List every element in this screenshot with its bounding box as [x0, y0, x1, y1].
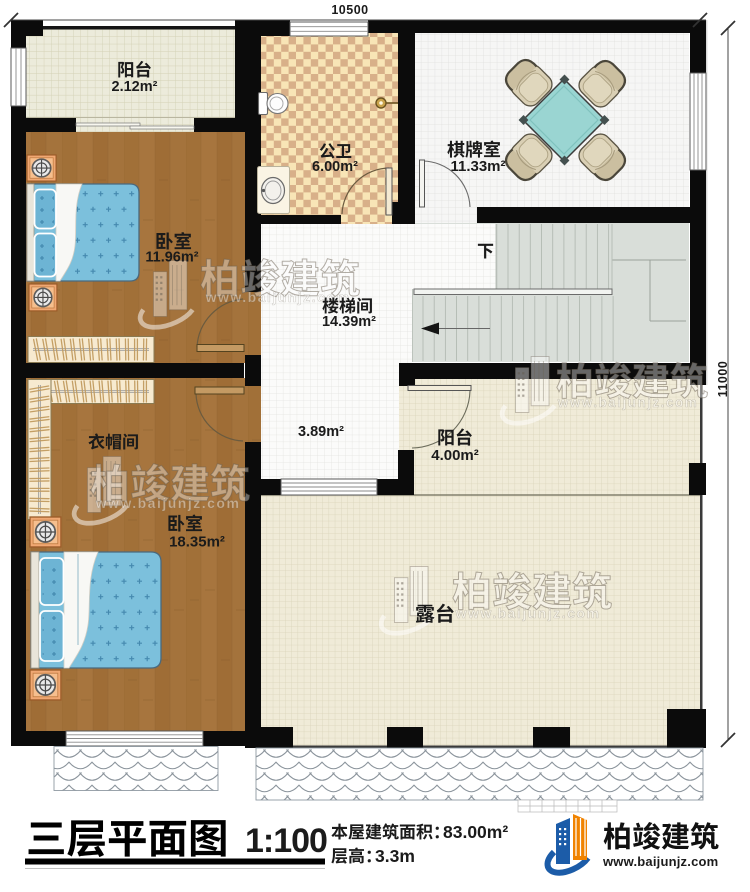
svg-text:11.33m²: 11.33m²	[450, 158, 505, 175]
svg-text:2.12m²: 2.12m²	[112, 79, 158, 95]
svg-text:www.baijunjz.com: www.baijunjz.com	[205, 289, 351, 305]
svg-text:www.baijunjz.com: www.baijunjz.com	[95, 495, 241, 511]
svg-text:www.baijunjz.com: www.baijunjz.com	[455, 605, 601, 621]
svg-text:10500: 10500	[331, 3, 368, 17]
svg-text:83.00m²: 83.00m²	[443, 822, 508, 842]
svg-text:3.3m: 3.3m	[375, 846, 415, 866]
svg-text:4.00m²: 4.00m²	[431, 447, 479, 464]
svg-text:14.39m²: 14.39m²	[322, 314, 376, 330]
svg-text:1:100: 1:100	[245, 822, 327, 860]
svg-text:3.89m²: 3.89m²	[298, 424, 344, 440]
svg-text:6.00m²: 6.00m²	[312, 159, 358, 175]
svg-text:www.baijunjz.com: www.baijunjz.com	[602, 854, 718, 869]
svg-text:www.baijunjz.com: www.baijunjz.com	[557, 395, 699, 410]
svg-text:18.35m²: 18.35m²	[169, 534, 225, 551]
svg-text:11.96m²: 11.96m²	[145, 250, 198, 266]
svg-text:11000: 11000	[716, 361, 730, 398]
